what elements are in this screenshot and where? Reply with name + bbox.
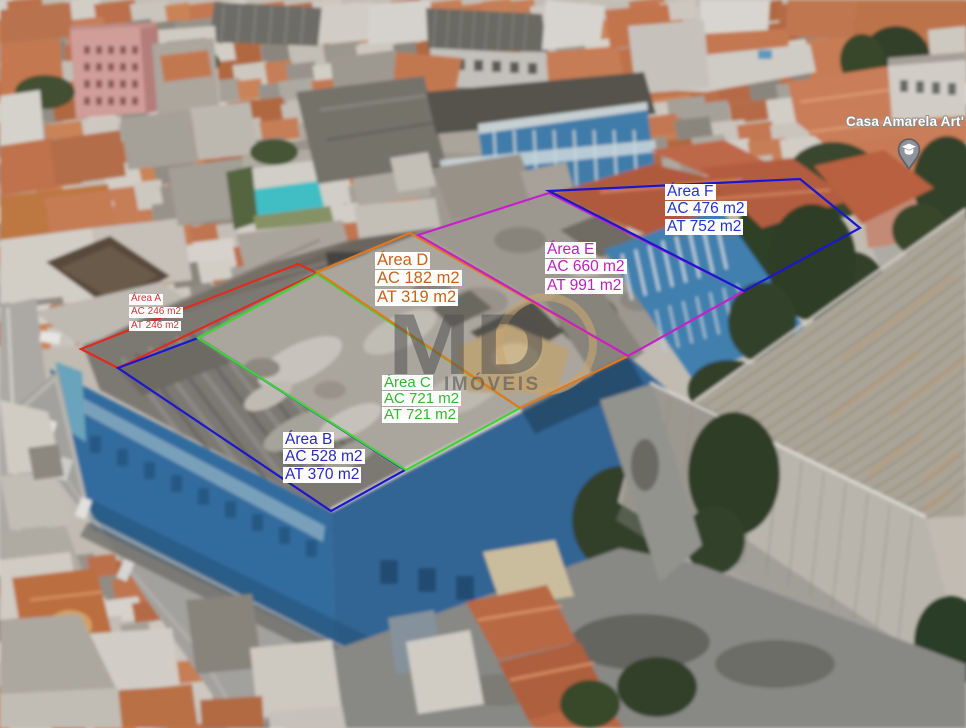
svg-text:Casa Amarela Art': Casa Amarela Art' xyxy=(846,114,964,129)
